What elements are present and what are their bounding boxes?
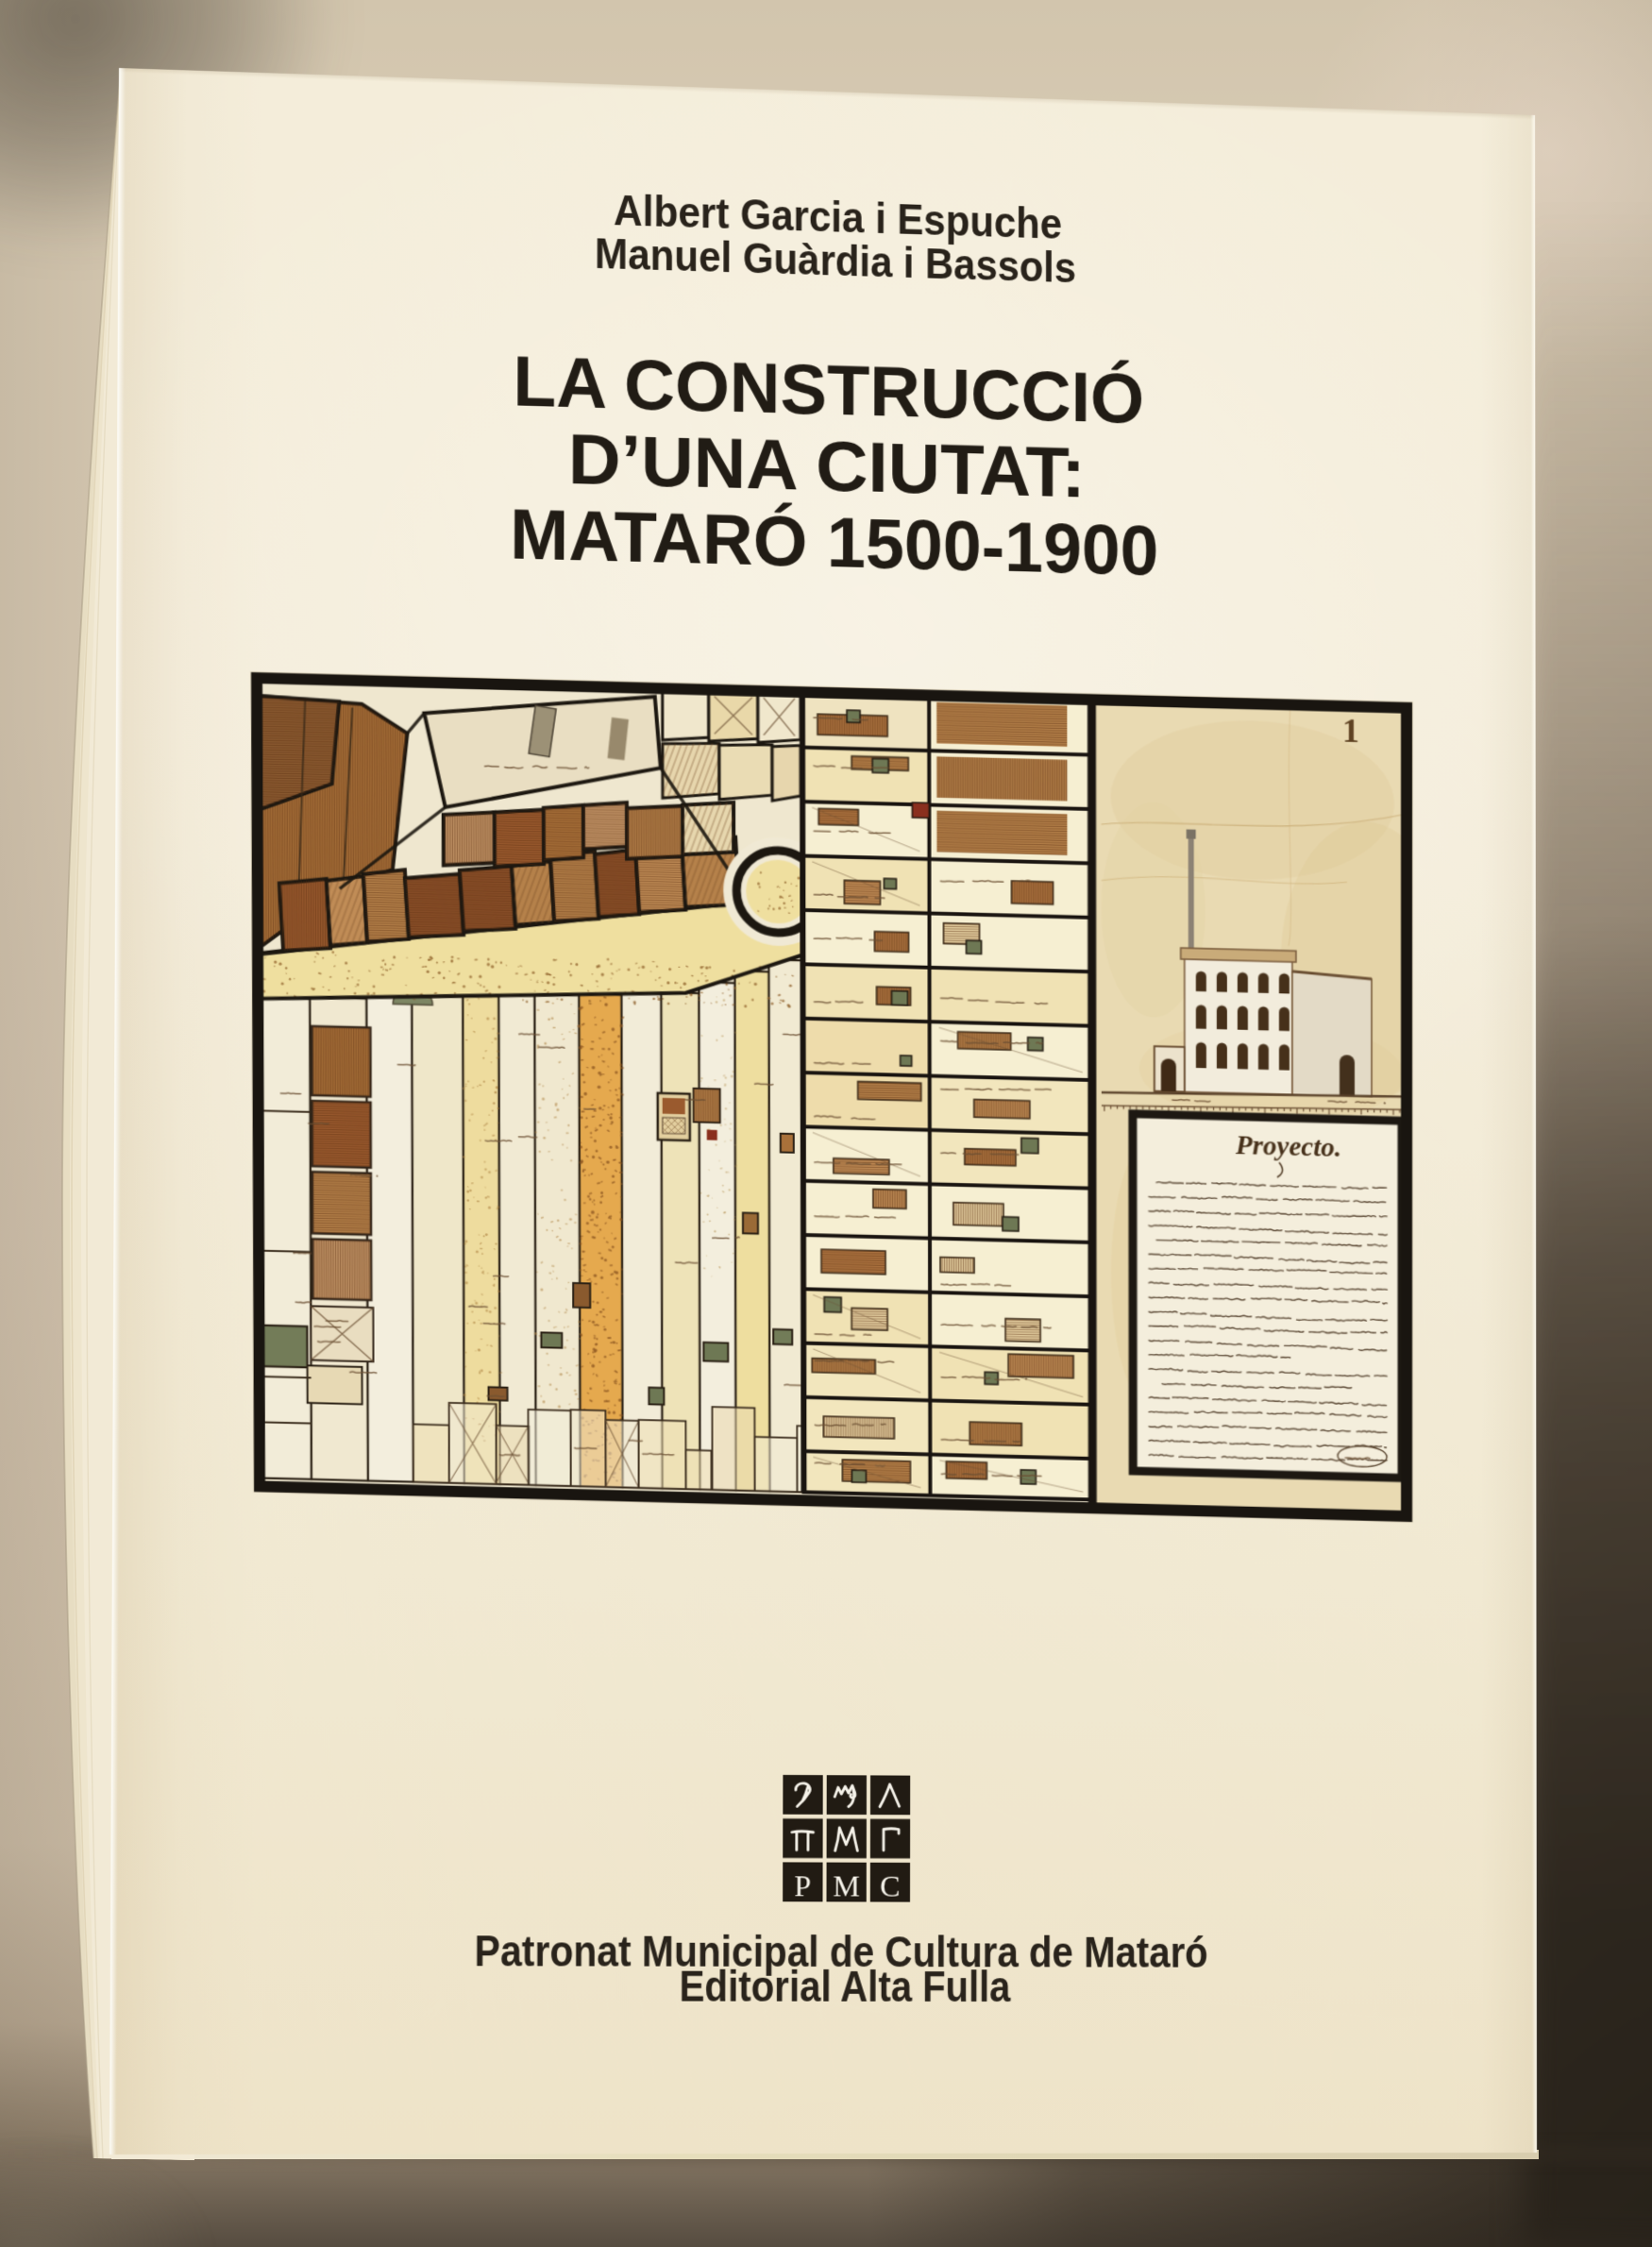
svg-text:MATARÓ 1500-1900: MATARÓ 1500-1900 (510, 496, 1158, 591)
svg-text:Editorial Alta Fulla: Editorial Alta Fulla (679, 1962, 1011, 2011)
